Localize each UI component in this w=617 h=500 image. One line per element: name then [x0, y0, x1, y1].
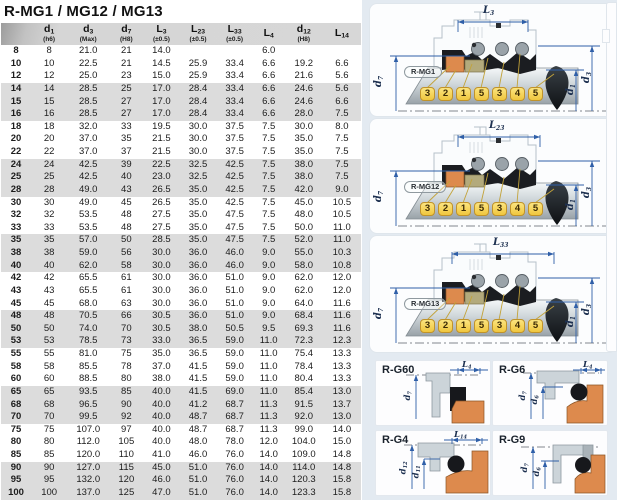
- cell-value: 7.5: [323, 133, 361, 146]
- cell-value: [217, 45, 253, 58]
- cell-value: 23.0: [143, 171, 179, 184]
- cell-value: 68: [31, 399, 67, 412]
- table-row: 707099.59240.048.768.711.392.013.0: [1, 411, 361, 424]
- cell-value: 10.3: [323, 247, 361, 260]
- cell-value: 13.0: [323, 386, 361, 399]
- table-row: 585885.57837.041.559.011.078.413.3: [1, 361, 361, 374]
- dimension-label-left: d7: [374, 76, 385, 87]
- row-size-label: 80: [1, 436, 31, 449]
- cell-value: 68.7: [217, 424, 253, 437]
- table-row: 333353.54827.535.047.57.550.011.0: [1, 222, 361, 235]
- cell-value: 60: [31, 373, 67, 386]
- cell-value: 9.0: [323, 184, 361, 197]
- row-size-label: 100: [1, 487, 31, 500]
- cell-value: 80: [31, 436, 67, 449]
- cell-value: 48: [109, 222, 143, 235]
- dimension-label-left: d7: [404, 391, 414, 401]
- cell-value: 25.9: [179, 70, 216, 83]
- row-size-label: 50: [1, 323, 31, 336]
- table-row: 484870.56630.536.051.09.068.411.6: [1, 310, 361, 323]
- cell-value: 5.6: [323, 70, 361, 83]
- cell-value: 11.6: [323, 298, 361, 311]
- cell-value: 35.0: [179, 209, 216, 222]
- cell-value: 120.0: [67, 449, 109, 462]
- cell-value: 21: [109, 58, 143, 71]
- table-row: 181832.03319.530.037.57.530.08.0: [1, 121, 361, 134]
- cell-value: 21.5: [143, 133, 179, 146]
- dimension-label-left: d6: [531, 395, 541, 405]
- cell-value: 41.5: [179, 361, 216, 374]
- cell-value: 22.5: [67, 58, 109, 71]
- cell-value: 17.0: [143, 83, 179, 96]
- cell-value: 35.0: [179, 197, 216, 210]
- cell-value: 104.0: [285, 436, 323, 449]
- cell-value: 70: [31, 411, 67, 424]
- row-size-label: 32: [1, 209, 31, 222]
- spec-table-section: R-MG1 / MG12 / MG13 d1(h6)d3(Max)d7(H8)L…: [0, 0, 362, 500]
- cell-value: 15.0: [143, 70, 179, 83]
- row-size-label: 25: [1, 171, 31, 184]
- cell-value: 50.5: [217, 323, 253, 336]
- cell-value: 40: [31, 260, 67, 273]
- cell-value: 63: [109, 298, 143, 311]
- dimension-label-outer-diameter: d3: [582, 304, 593, 315]
- row-size-label: 15: [1, 96, 31, 109]
- cell-value: 66: [109, 310, 143, 323]
- dimension-label-top: L33: [493, 238, 508, 249]
- cell-value: 8: [31, 45, 67, 58]
- row-size-label: 30: [1, 197, 31, 210]
- dimension-label-inner-diameter: d1: [566, 84, 577, 95]
- dimension-label-left: d7: [374, 191, 385, 202]
- cell-value: 9.0: [253, 247, 285, 260]
- cell-value: 40.0: [143, 399, 179, 412]
- callout-number: 5: [474, 319, 489, 333]
- table-row: 7575107.09740.048.768.711.399.014.0: [1, 424, 361, 437]
- cell-value: 7.5: [253, 133, 285, 146]
- cell-value: 13.3: [323, 361, 361, 374]
- cell-value: 7.5: [323, 159, 361, 172]
- cell-value: 30.0: [143, 285, 179, 298]
- detail-panel-label: R-G6: [499, 365, 525, 376]
- dimension-label-left: d7: [519, 391, 529, 401]
- seat-detail-panel: R-G60 L4d7: [375, 360, 491, 426]
- cell-value: 95: [31, 474, 67, 487]
- cell-value: 45: [31, 298, 67, 311]
- cell-value: 51.0: [217, 310, 253, 323]
- cell-value: 28.5: [67, 96, 109, 109]
- cell-value: 58.0: [285, 260, 323, 273]
- cell-value: 28.4: [179, 83, 216, 96]
- table-row: 202037.03521.530.037.57.535.07.5: [1, 133, 361, 146]
- dimension-label-left: d7: [521, 463, 531, 473]
- cell-value: [179, 45, 216, 58]
- callout-number: 5: [474, 202, 489, 216]
- cell-value: 47.5: [217, 234, 253, 247]
- cell-value: 9.0: [253, 285, 285, 298]
- cell-value: 59.0: [217, 348, 253, 361]
- cell-value: 125: [109, 487, 143, 500]
- cell-value: 85.4: [285, 386, 323, 399]
- cell-value: 42.5: [217, 159, 253, 172]
- cell-value: 22.5: [143, 159, 179, 172]
- cell-value: 26.5: [143, 197, 179, 210]
- cell-value: 51.0: [217, 272, 253, 285]
- cell-value: 92.0: [285, 411, 323, 424]
- cell-value: 42.5: [217, 197, 253, 210]
- dimension-label-top: L23: [489, 121, 504, 132]
- cell-value: 42.5: [217, 171, 253, 184]
- cell-value: 48.7: [179, 424, 216, 437]
- row-size-label: 8: [1, 45, 31, 58]
- table-row: 454568.06330.036.051.09.064.011.6: [1, 298, 361, 311]
- callout-number: 1: [456, 87, 471, 101]
- cell-value: 7.5: [253, 146, 285, 159]
- cell-value: 45: [109, 197, 143, 210]
- seat-detail-panel: R-G6 L4d7d6: [492, 360, 608, 426]
- cell-value: 41.5: [179, 386, 216, 399]
- cell-value: 46.0: [143, 474, 179, 487]
- cell-value: 28.5: [67, 108, 109, 121]
- column-header: L33(±0.5): [217, 23, 253, 45]
- callout-number: 4: [510, 319, 525, 333]
- cell-value: 9.0: [253, 298, 285, 311]
- callout-number: 1: [456, 202, 471, 216]
- dimension-label-left: d11: [413, 465, 423, 478]
- cell-value: 33: [109, 121, 143, 134]
- cell-value: 65: [31, 386, 67, 399]
- cell-value: 30.0: [179, 133, 216, 146]
- cell-value: 47.5: [217, 209, 253, 222]
- cell-value: 58: [109, 260, 143, 273]
- part-callouts: 3215345: [420, 87, 543, 101]
- cell-value: 30.0: [179, 146, 216, 159]
- cell-value: 30.0: [143, 260, 179, 273]
- cell-value: 28.5: [67, 83, 109, 96]
- cell-value: 99.5: [67, 411, 109, 424]
- cell-value: 25: [31, 171, 67, 184]
- cell-value: 17.0: [143, 108, 179, 121]
- cell-value: 75: [109, 348, 143, 361]
- seal-diagram-panel: L33 d7 d1 d3 R-MG13 3215345: [369, 235, 617, 353]
- cell-value: 30.5: [143, 310, 179, 323]
- cell-value: 62.0: [285, 285, 323, 298]
- cell-value: 69.0: [217, 386, 253, 399]
- cell-value: 70.5: [67, 310, 109, 323]
- cell-value: 40.0: [143, 424, 179, 437]
- cell-value: 10: [31, 58, 67, 71]
- cell-value: 35.0: [179, 184, 216, 197]
- cell-value: 18: [31, 121, 67, 134]
- row-size-label: 95: [1, 474, 31, 487]
- cell-value: 90: [109, 399, 143, 412]
- cell-value: 11.6: [323, 310, 361, 323]
- callout-number: 4: [510, 202, 525, 216]
- cell-value: 112.0: [67, 436, 109, 449]
- cell-value: 42.5: [217, 184, 253, 197]
- cell-value: 40.0: [143, 386, 179, 399]
- row-size-label: 55: [1, 348, 31, 361]
- cell-value: 132.0: [67, 474, 109, 487]
- cell-value: 19.5: [143, 121, 179, 134]
- cell-value: 30.5: [143, 323, 179, 336]
- cell-value: 137.0: [67, 487, 109, 500]
- cell-value: 48.0: [285, 209, 323, 222]
- callout-number: 5: [528, 202, 543, 216]
- seal-diagram-panel: L23 d7 d1 d3 R-MG12 3215345: [369, 118, 617, 234]
- cell-value: 48: [109, 209, 143, 222]
- cell-value: 28: [31, 184, 67, 197]
- callout-number: 3: [420, 202, 435, 216]
- cell-value: 9.5: [253, 323, 285, 336]
- cell-value: 11.0: [253, 373, 285, 386]
- cell-value: 70: [109, 323, 143, 336]
- table-row: 8080112.010540.048.078.012.0104.015.0: [1, 436, 361, 449]
- cell-value: 27: [109, 108, 143, 121]
- cell-value: 91.5: [285, 399, 323, 412]
- cell-value: 51.0: [217, 285, 253, 298]
- cell-value: 14.0: [323, 424, 361, 437]
- cell-value: 93.5: [67, 386, 109, 399]
- cell-value: 27.5: [143, 222, 179, 235]
- row-size-label: 70: [1, 411, 31, 424]
- part-callouts: 3215345: [420, 319, 543, 333]
- cell-value: 33.4: [217, 108, 253, 121]
- dimension-label-top: L4: [462, 361, 472, 371]
- cell-value: 109.0: [285, 449, 323, 462]
- cell-value: 36.0: [179, 285, 216, 298]
- cell-value: 58: [31, 361, 67, 374]
- cell-value: 51.0: [179, 462, 216, 475]
- callout-number: 1: [456, 319, 471, 333]
- cell-value: 76.0: [217, 449, 253, 462]
- part-callouts: 3215345: [420, 202, 543, 216]
- cell-value: 36.5: [179, 335, 216, 348]
- table-row: 252542.54023.032.542.57.538.07.5: [1, 171, 361, 184]
- cell-value: 27.5: [143, 209, 179, 222]
- cell-value: 14.0: [253, 487, 285, 500]
- row-size-label: 14: [1, 83, 31, 96]
- row-size-label: 10: [1, 58, 31, 71]
- cell-value: 7.5: [323, 108, 361, 121]
- cell-value: 49.0: [67, 197, 109, 210]
- cell-value: 6.6: [253, 70, 285, 83]
- cell-value: 36.0: [179, 298, 216, 311]
- cell-value: 10.5: [323, 197, 361, 210]
- table-row: 151528.52717.028.433.46.624.66.6: [1, 96, 361, 109]
- catalog-page: R-MG1 / MG12 / MG13 d1(h6)d3(Max)d7(H8)L…: [0, 0, 617, 500]
- cell-value: 30.0: [143, 298, 179, 311]
- cell-value: 30.0: [285, 121, 323, 134]
- cell-value: 120.3: [285, 474, 323, 487]
- row-size-label: 24: [1, 159, 31, 172]
- cell-value: 75: [31, 424, 67, 437]
- cell-value: 42.5: [67, 159, 109, 172]
- cell-value: 56: [109, 247, 143, 260]
- dimension-label-outer-diameter: d3: [582, 72, 593, 83]
- cell-value: 35.0: [143, 348, 179, 361]
- row-size-label: 33: [1, 222, 31, 235]
- cell-value: 85.5: [67, 361, 109, 374]
- cell-value: 42.5: [67, 171, 109, 184]
- cell-value: 15: [31, 96, 67, 109]
- table-header-row: d1(h6)d3(Max)d7(H8)L3(±0.5)L23(±0.5)L33(…: [1, 23, 361, 45]
- seat-detail-panel: R-G4 L14d12d11: [375, 430, 491, 496]
- diagram-section: L3 d7 d1 d3 R-MG1 3215345 L23 d7 d1 d3 R…: [362, 0, 617, 500]
- cell-value: 37.0: [67, 146, 109, 159]
- column-header: d1(h6): [31, 23, 67, 45]
- callout-number: 2: [438, 319, 453, 333]
- cell-value: 24: [31, 159, 67, 172]
- seal-diagram-panel: L3 d7 d1 d3 R-MG1 3215345: [369, 3, 617, 117]
- table-row: 9595132.012046.051.076.014.0120.315.8: [1, 474, 361, 487]
- cell-value: 11.3: [253, 399, 285, 412]
- cell-value: 32.0: [67, 121, 109, 134]
- cell-value: 7.5: [323, 171, 361, 184]
- row-size-label: 53: [1, 335, 31, 348]
- cell-value: 127.0: [67, 462, 109, 475]
- dimension-label-left: d6: [533, 467, 543, 477]
- cell-value: 76.0: [217, 462, 253, 475]
- cell-value: 21.6: [285, 70, 323, 83]
- cell-value: 28.5: [143, 234, 179, 247]
- cell-value: 13.3: [323, 373, 361, 386]
- row-size-label: 18: [1, 121, 31, 134]
- cell-value: 12.3: [323, 335, 361, 348]
- cell-value: 51.0: [179, 487, 216, 500]
- cell-value: 59.0: [217, 335, 253, 348]
- row-size-label: 40: [1, 260, 31, 273]
- cell-value: 33: [31, 222, 67, 235]
- cell-value: 7.5: [253, 159, 285, 172]
- cell-value: 28.4: [179, 108, 216, 121]
- column-header: [1, 23, 31, 45]
- row-size-label: 60: [1, 373, 31, 386]
- cell-value: 59.0: [217, 361, 253, 374]
- cell-value: 48: [31, 310, 67, 323]
- table-row: 222237.03721.530.037.57.535.07.5: [1, 146, 361, 159]
- cell-value: 32: [31, 209, 67, 222]
- cell-value: 97: [109, 424, 143, 437]
- cell-value: 20: [31, 133, 67, 146]
- cell-value: 72.3: [285, 335, 323, 348]
- cell-value: 25.0: [67, 70, 109, 83]
- table-row: 161628.52717.028.433.46.628.07.5: [1, 108, 361, 121]
- cell-value: 48.0: [179, 436, 216, 449]
- cell-value: 42.0: [285, 184, 323, 197]
- cell-value: 33.4: [217, 70, 253, 83]
- cell-value: 16: [31, 108, 67, 121]
- cell-value: 47.5: [217, 222, 253, 235]
- cell-value: 68.7: [217, 411, 253, 424]
- table-row: 141428.52517.028.433.46.624.65.6: [1, 83, 361, 96]
- table-row: 535378.57333.036.559.011.072.312.3: [1, 335, 361, 348]
- cell-value: 7.5: [253, 234, 285, 247]
- table-row: 303049.04526.535.042.57.545.010.5: [1, 197, 361, 210]
- cell-value: 12.0: [323, 272, 361, 285]
- cell-value: 11.0: [253, 361, 285, 374]
- cell-value: 65.5: [67, 272, 109, 285]
- cell-value: [285, 45, 323, 58]
- cell-value: 11.0: [253, 348, 285, 361]
- cell-value: 59.0: [67, 247, 109, 260]
- cell-value: 41.5: [179, 373, 216, 386]
- cell-value: 37.5: [217, 133, 253, 146]
- cell-value: 33.4: [217, 83, 253, 96]
- cell-value: 110: [109, 449, 143, 462]
- row-size-label: 65: [1, 386, 31, 399]
- cell-value: 14: [31, 83, 67, 96]
- cell-value: 46.0: [217, 247, 253, 260]
- detail-panel-label: R-G9: [499, 435, 525, 446]
- cell-value: 69.3: [285, 323, 323, 336]
- cell-value: 35.0: [285, 133, 323, 146]
- cell-value: 11.3: [253, 424, 285, 437]
- cell-value: 17.0: [143, 96, 179, 109]
- spec-table: d1(h6)d3(Max)d7(H8)L3(±0.5)L23(±0.5)L33(…: [1, 23, 361, 500]
- cell-value: 45.0: [143, 462, 179, 475]
- cell-value: 40: [109, 171, 143, 184]
- cell-value: 65.5: [67, 285, 109, 298]
- row-size-label: 35: [1, 234, 31, 247]
- cell-value: 36.0: [179, 272, 216, 285]
- detail-panel-label: R-G4: [382, 435, 408, 446]
- cell-value: 36.5: [179, 348, 216, 361]
- cell-value: 19.2: [285, 58, 323, 71]
- callout-number: 5: [528, 319, 543, 333]
- cell-value: 64.0: [285, 298, 323, 311]
- cell-value: 6.0: [253, 45, 285, 58]
- row-size-label: 12: [1, 70, 31, 83]
- cell-value: 73: [109, 335, 143, 348]
- cell-value: 100: [31, 487, 67, 500]
- cell-value: 57.0: [67, 234, 109, 247]
- cell-value: 15.8: [323, 487, 361, 500]
- cell-value: 51.0: [217, 298, 253, 311]
- cell-value: 30.0: [143, 272, 179, 285]
- cell-value: 7.5: [253, 171, 285, 184]
- model-tag: R-MG12: [404, 181, 446, 193]
- cell-value: 11.0: [253, 386, 285, 399]
- column-header: L23(±0.5): [179, 23, 216, 45]
- table-row: 404062.05830.036.046.09.058.010.8: [1, 260, 361, 273]
- dimension-label-left: d12: [400, 461, 410, 474]
- detail-panel-label: R-G60: [382, 365, 414, 376]
- cell-value: 85: [31, 449, 67, 462]
- cell-value: 80.4: [285, 373, 323, 386]
- cell-value: 7.5: [323, 146, 361, 159]
- cell-value: 40.0: [143, 411, 179, 424]
- cell-value: 11.0: [323, 222, 361, 235]
- column-header: d3(Max): [67, 23, 109, 45]
- page-title: R-MG1 / MG12 / MG13: [0, 0, 362, 23]
- column-header: L3(±0.5): [143, 23, 179, 45]
- callout-number: 3: [420, 87, 435, 101]
- dimension-label-top: L4: [583, 361, 593, 371]
- cell-value: 7.5: [253, 209, 285, 222]
- cell-value: 120: [109, 474, 143, 487]
- cell-value: 8.0: [323, 121, 361, 134]
- callout-number: 2: [438, 87, 453, 101]
- table-row: 606088.58038.041.559.011.080.413.3: [1, 373, 361, 386]
- cell-value: 7.5: [253, 197, 285, 210]
- cell-value: 30.0: [179, 121, 216, 134]
- row-size-label: 38: [1, 247, 31, 260]
- row-size-label: 28: [1, 184, 31, 197]
- cell-value: [323, 45, 361, 58]
- cell-value: 6.6: [323, 58, 361, 71]
- callout-number: 3: [492, 319, 507, 333]
